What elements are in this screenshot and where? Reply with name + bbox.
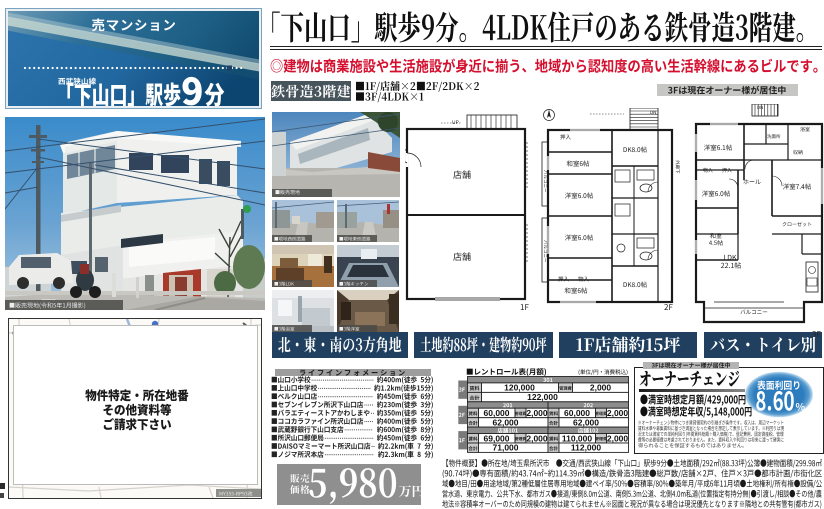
svg-text:62,000: 62,000 xyxy=(493,417,519,427)
svg-text:2,000: 2,000 xyxy=(526,408,548,418)
svg-text:2,000: 2,000 xyxy=(607,408,629,418)
svg-text:62,000: 62,000 xyxy=(573,417,599,427)
svg-text:112,000: 112,000 xyxy=(571,443,602,453)
svg-text:122,000: 122,000 xyxy=(527,392,558,402)
svg-text:2,000: 2,000 xyxy=(526,433,548,443)
svg-text:2,000: 2,000 xyxy=(607,433,629,443)
svg-text:71,000: 71,000 xyxy=(493,443,519,453)
svg-text:2,000: 2,000 xyxy=(590,383,612,393)
